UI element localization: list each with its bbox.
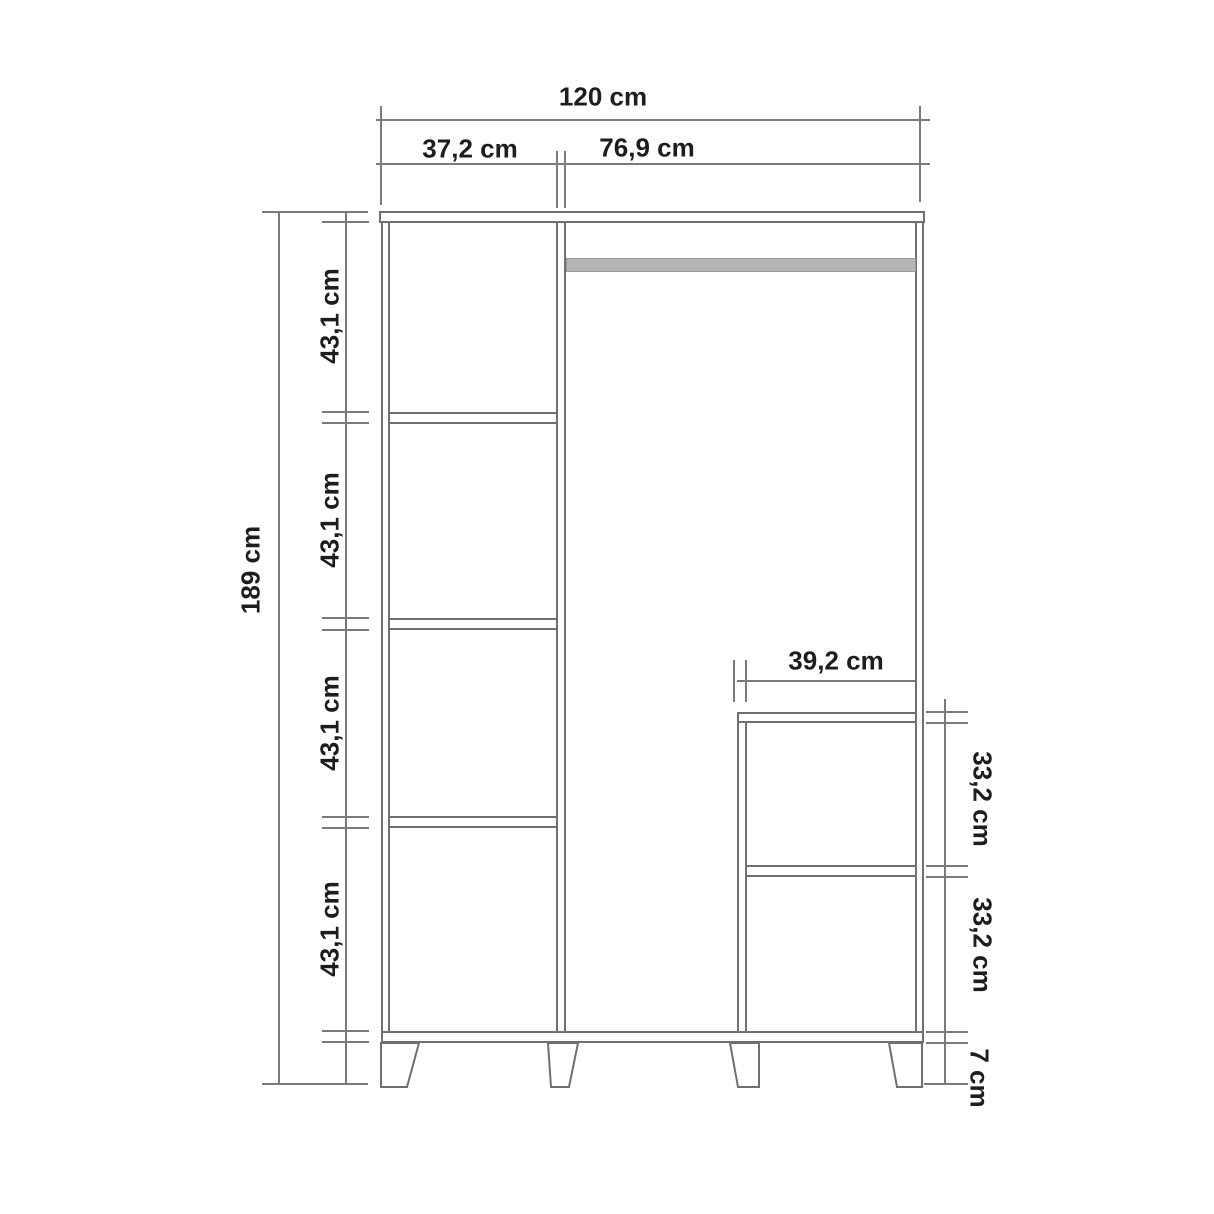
label-left-column-width: 37,2 cm <box>422 134 517 165</box>
diagram-canvas: 120 cm 37,2 cm 76,9 cm 189 cm 43,1 cm 43… <box>0 0 1214 1214</box>
label-leg-height: 7 cm <box>964 1048 995 1107</box>
left-shelf-2 <box>388 618 558 630</box>
inner-compartment-shelf <box>745 865 917 877</box>
dim-shelf-tick-b1 <box>322 411 369 413</box>
leg-mid-left <box>545 1042 581 1088</box>
dim-total-height-tick-top <box>262 211 368 213</box>
dim-total-width-line <box>376 119 930 121</box>
leg-front-left <box>380 1042 420 1088</box>
dim-total-width-tick-left <box>380 106 382 205</box>
cabinet-right-wall <box>915 221 924 1043</box>
dim-shelf-tick-a <box>322 221 369 223</box>
inner-compartment-left-wall <box>737 721 747 1033</box>
inner-compartment-top-panel <box>737 712 917 723</box>
dim-shelf-tick-c2 <box>322 629 369 631</box>
dim-shelf-tick-d2 <box>322 827 369 829</box>
dim-total-width-tick-right <box>919 106 921 202</box>
dim-shelf-tick-c1 <box>322 617 369 619</box>
label-shelf-height-2: 43,1 cm <box>315 472 346 567</box>
label-inner-height-1: 33,2 cm <box>967 751 998 846</box>
label-total-width: 120 cm <box>559 82 647 113</box>
dim-inner-width-tick-2 <box>745 660 747 702</box>
cabinet-left-wall <box>381 221 390 1043</box>
dim-shelf-tick-d1 <box>322 816 369 818</box>
dim-inner-height-tick-b1 <box>926 865 968 867</box>
label-right-column-width: 76,9 cm <box>599 133 694 164</box>
label-total-height: 189 cm <box>236 526 267 614</box>
leg-mid-right <box>727 1042 761 1088</box>
dim-inner-height-tick-a1 <box>926 711 968 713</box>
dim-inner-height-tick-c2 <box>926 1042 968 1044</box>
dim-total-height-tick-bottom <box>262 1083 368 1085</box>
dim-inner-height-tick-b2 <box>926 876 968 878</box>
left-shelf-1 <box>388 412 558 424</box>
dim-inner-height-tick-a2 <box>926 722 968 724</box>
dim-shelf-tick-b2 <box>322 422 369 424</box>
dim-inner-width-tick-1 <box>733 660 735 702</box>
label-inner-height-2: 33,2 cm <box>967 897 998 992</box>
leg-front-right <box>886 1042 924 1088</box>
hanger-rod <box>566 258 916 272</box>
left-shelf-3 <box>388 816 558 828</box>
dim-inner-height-tick-c1 <box>926 1031 968 1033</box>
dim-inner-width-line <box>737 680 915 682</box>
dim-shelf-tick-e2 <box>322 1041 369 1043</box>
dim-total-height-line <box>278 211 280 1084</box>
dim-leg-height-tick-bottom <box>924 1083 968 1085</box>
dim-sub-width-mid-tick-1 <box>556 151 558 208</box>
dim-inner-height-line <box>944 699 946 1084</box>
dim-sub-width-mid-tick-2 <box>564 151 566 208</box>
cabinet-top-panel <box>379 211 925 223</box>
label-inner-width: 39,2 cm <box>788 646 883 677</box>
dim-shelf-tick-e1 <box>322 1030 369 1032</box>
label-shelf-height-3: 43,1 cm <box>315 675 346 770</box>
label-shelf-height-1: 43,1 cm <box>315 268 346 363</box>
cabinet-bottom-panel <box>381 1031 924 1043</box>
label-shelf-height-4: 43,1 cm <box>315 881 346 976</box>
